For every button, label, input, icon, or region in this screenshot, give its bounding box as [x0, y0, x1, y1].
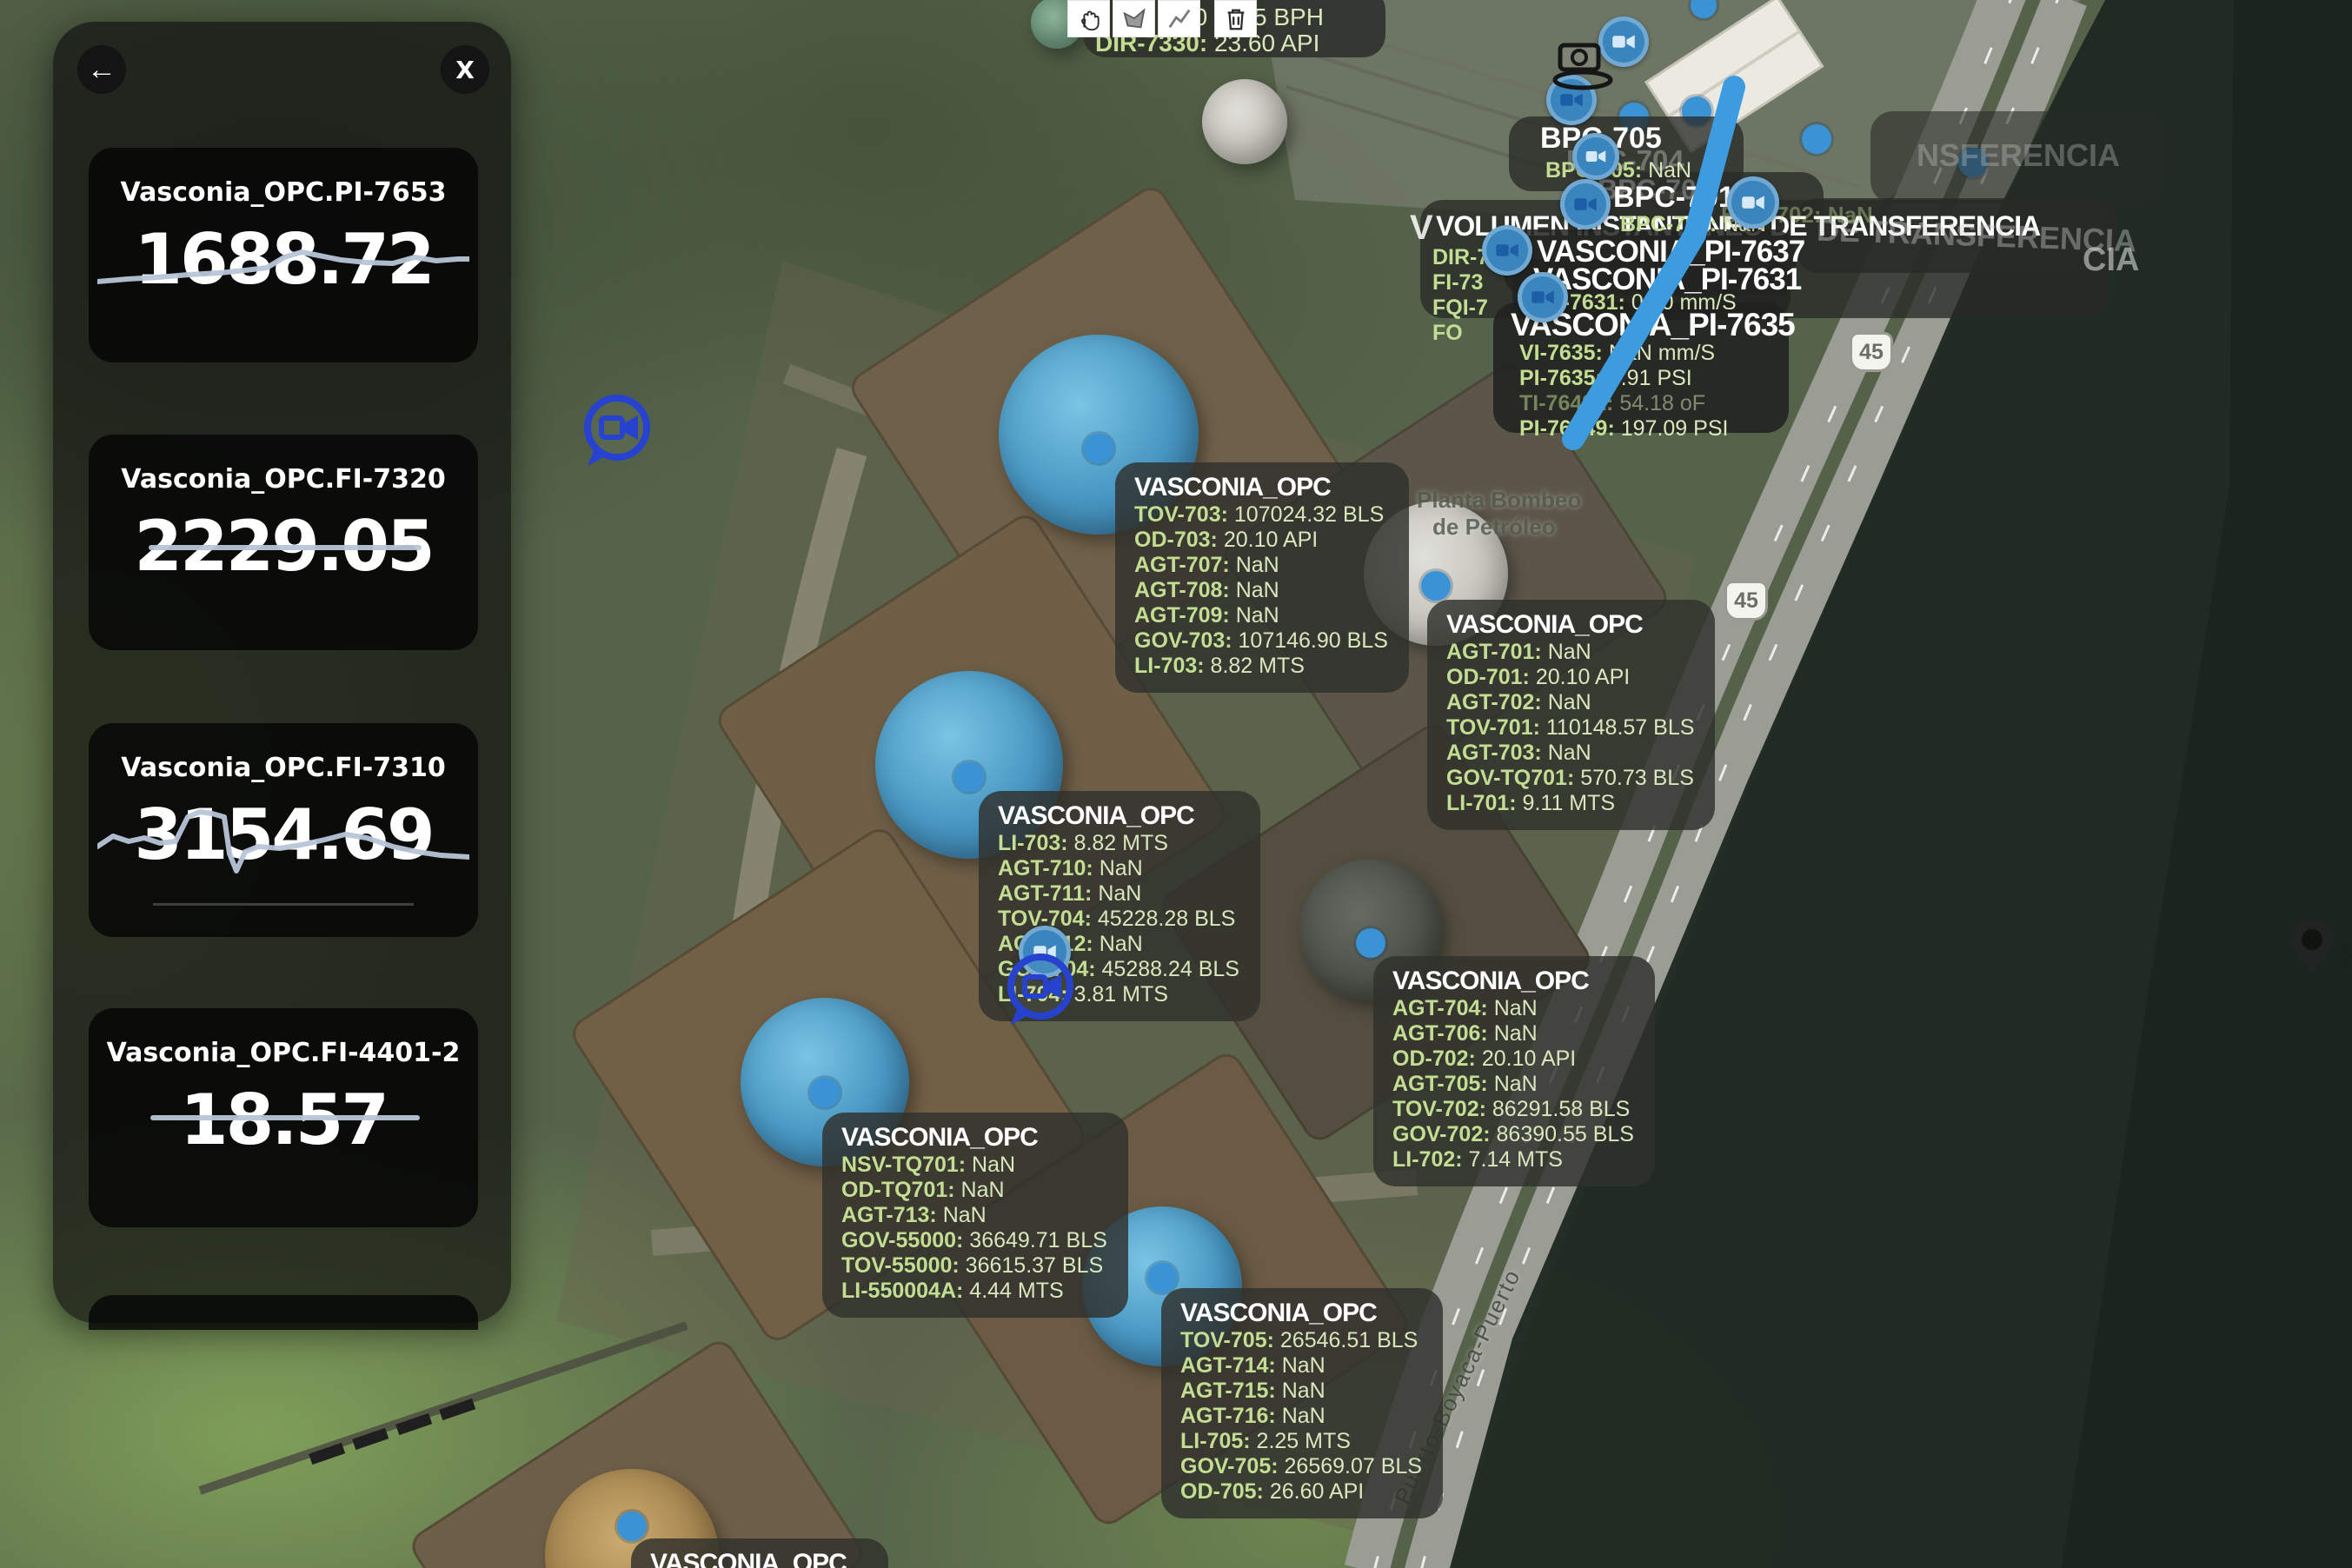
- hospital-pin-icon[interactable]: [2288, 918, 2336, 990]
- row-value: NaN: [955, 1178, 1005, 1202]
- row-label: LI-705:: [1180, 1429, 1251, 1453]
- row-value: NaN mm/S: [1603, 341, 1715, 365]
- video-camera-bubble-icon[interactable]: [581, 393, 654, 477]
- gauge-sidebar-panel: ← X Vasconia_OPC.PI-7653 1688.72 Vasconi…: [53, 22, 511, 1323]
- tooltip-row: TOV-705: 26546.51 BLS: [1180, 1328, 1422, 1353]
- row-value: NaN: [1276, 1379, 1325, 1403]
- row-value: 107146.90 BLS: [1232, 628, 1388, 653]
- tooltip-row: AGT-710: NaN: [998, 856, 1239, 881]
- tooltip-title: VASCONIA_OPC: [1446, 610, 1694, 640]
- polygon-icon: [1121, 6, 1147, 32]
- row-value: 20.10 API: [1218, 528, 1318, 552]
- tooltip-row: PI-7635: 4.91 PSI: [1519, 366, 1728, 391]
- tooltip-row: FI-73: [1432, 270, 1489, 296]
- row-value: 570.73 BLS: [1574, 766, 1694, 790]
- tooltip-rows: TOV-705: 26546.51 BLSAGT-714: NaNAGT-715…: [1180, 1328, 1422, 1505]
- row-label: GOV-703:: [1134, 628, 1232, 653]
- row-value: 36649.71 BLS: [963, 1228, 1106, 1252]
- row-label: AGT-708:: [1134, 578, 1230, 602]
- row-label: TOV-703:: [1134, 502, 1228, 527]
- polygon-tool-button[interactable]: [1113, 0, 1155, 37]
- gauge-title: Vasconia_OPC.PI-7653: [121, 177, 447, 208]
- row-value: NaN: [1230, 553, 1279, 577]
- gauge-title: Vasconia_OPC.FI-7310: [121, 753, 445, 783]
- route-shield: 45: [1724, 581, 1768, 621]
- tooltip-row: AGT-711: NaN: [998, 881, 1239, 907]
- hand-icon: [1076, 6, 1102, 32]
- row-value: NaN: [1488, 1072, 1538, 1096]
- row-label: LI-703:: [998, 831, 1068, 855]
- gauge-title: Vasconia_OPC.FI-4401-2: [107, 1038, 461, 1068]
- map-toolbar: [1067, 0, 1257, 37]
- row-value: 3.81 MTS: [1068, 982, 1168, 1007]
- bpc701-title: BPC-701: [1613, 181, 1735, 215]
- gauge-card-fi-4401-2[interactable]: Vasconia_OPC.FI-4401-2 18.57: [89, 1008, 478, 1227]
- row-value: 86390.55 BLS: [1491, 1122, 1634, 1146]
- row-value: 36615.37 BLS: [960, 1253, 1103, 1278]
- tooltip-row: TOV-703: 107024.32 BLS: [1134, 502, 1388, 528]
- tooltip-row: GOV-705: 26569.07 BLS: [1180, 1454, 1422, 1479]
- row-label: VI-7635:: [1519, 341, 1603, 365]
- map-marker-dot[interactable]: [810, 1078, 840, 1107]
- tooltip-row: OD-701: 20.10 API: [1446, 665, 1694, 690]
- row-value: NaN: [1542, 690, 1591, 714]
- gauge-card-partial[interactable]: [89, 1295, 478, 1330]
- camera-marker-icon[interactable]: [1518, 272, 1568, 322]
- row-label: TOV-702:: [1392, 1097, 1486, 1121]
- map-marker-dot[interactable]: [1802, 124, 1831, 154]
- plant-name-label: Planta Bombeo de Petróleo: [1417, 487, 1581, 541]
- storage-tank: [1202, 79, 1287, 164]
- row-value: NaN: [937, 1203, 987, 1227]
- row-value: 4.44 MTS: [963, 1279, 1063, 1303]
- gauge-title: Vasconia_OPC.FI-7320: [121, 464, 445, 495]
- row-label: AGT-716:: [1180, 1404, 1276, 1428]
- tooltip-vasconia-opc: VASCONIA_OPC: [631, 1538, 888, 1568]
- row-value: 20.10 API: [1476, 1046, 1576, 1071]
- gauge-card-pi-7653[interactable]: Vasconia_OPC.PI-7653 1688.72: [89, 148, 478, 362]
- row-value: 197.09 PSI: [1615, 416, 1729, 441]
- tooltip-row: AGT-716: NaN: [1180, 1404, 1422, 1429]
- row-label: OD-702:: [1392, 1046, 1476, 1071]
- row-label: GOV-55000:: [841, 1228, 963, 1252]
- tooltip-row: AGT-701: NaN: [1446, 640, 1694, 665]
- row-label: AGT-702:: [1446, 690, 1542, 714]
- row-label: GOV-702:: [1392, 1122, 1491, 1146]
- row-value: NaN: [1542, 741, 1591, 765]
- tooltip-row: LI-705: 2.25 MTS: [1180, 1429, 1422, 1454]
- row-label: TOV-701:: [1446, 715, 1540, 740]
- row-value: NaN: [1093, 932, 1143, 956]
- row-value: 2.25 MTS: [1251, 1429, 1351, 1453]
- row-label: OD-703:: [1134, 528, 1218, 552]
- tooltip-rows: NSV-TQ701: NaNOD-TQ701: NaNAGT-713: NaNG…: [841, 1153, 1107, 1304]
- tooltip-rows: TOV-703: 107024.32 BLSOD-703: 20.10 APIA…: [1134, 502, 1388, 679]
- tooltip-rows: AGT-701: NaNOD-701: 20.10 APIAGT-702: Na…: [1446, 640, 1694, 816]
- row-value: 110148.57 BLS: [1540, 715, 1694, 740]
- close-button[interactable]: X: [441, 45, 489, 94]
- row-value: 9.11 MTS: [1517, 791, 1615, 815]
- row-label: FO: [1432, 321, 1463, 345]
- row-value: NaN: [1488, 1021, 1538, 1046]
- camera-marker-icon[interactable]: [1727, 176, 1779, 229]
- volumen-rows: DIR-7FI-73FQI-7FO: [1432, 245, 1489, 346]
- row-value: NaN: [1276, 1353, 1325, 1378]
- plant-name-line1: Planta Bombeo: [1417, 487, 1581, 514]
- hand-tool-button[interactable]: [1067, 0, 1110, 37]
- tooltip-title: VASCONIA_OPC: [1134, 473, 1388, 502]
- tooltip-title: VASCONIA_OPC: [1180, 1299, 1422, 1328]
- row-value: 8.82 MTS: [1068, 831, 1168, 855]
- polyline-tool-button[interactable]: [1158, 0, 1200, 37]
- row-value: NaN: [1092, 881, 1141, 906]
- ghost-title-fragment: CIA: [2083, 242, 2139, 279]
- rail-cars: [309, 1399, 475, 1465]
- row-value: 45228.28 BLS: [1092, 907, 1235, 931]
- gauge-value: 3154.69: [134, 797, 432, 874]
- tooltip-row: AGT-706: NaN: [1392, 1021, 1634, 1046]
- row-value: 26569.07 BLS: [1279, 1454, 1422, 1478]
- route-shield: 45: [1850, 332, 1893, 372]
- row-value: 107024.32 BLS: [1228, 502, 1384, 527]
- row-label: FQI-7: [1432, 296, 1488, 320]
- ghost-title-fragment: V: [1410, 209, 1433, 248]
- tooltip-row: OD-705: 26.60 API: [1180, 1479, 1422, 1505]
- row-label: LI-550004A:: [841, 1279, 963, 1303]
- row-value: NaN: [1488, 996, 1538, 1020]
- tooltip-row: AGT-707: NaN: [1134, 553, 1388, 578]
- row-value: NaN: [1093, 856, 1143, 880]
- tooltip-vasconia-opc: VASCONIA_OPC AGT-704: NaNAGT-706: NaNOD-…: [1373, 956, 1655, 1186]
- camera-marker-icon[interactable]: [1572, 133, 1619, 180]
- tooltip-row: GOV-702: 86390.55 BLS: [1392, 1122, 1634, 1147]
- tooltip-row: OD-702: 20.10 API: [1392, 1046, 1634, 1072]
- row-label: BPC-701:: [1620, 212, 1717, 236]
- row-value: 8.82 MTS: [1205, 654, 1305, 678]
- map-marker-dot[interactable]: [954, 762, 984, 792]
- row-value: NaN: [1230, 603, 1279, 628]
- camera-marker-icon[interactable]: [1482, 225, 1532, 276]
- row-label: OD-TQ701:: [841, 1178, 955, 1202]
- row-label: TOV-705:: [1180, 1328, 1274, 1352]
- tooltip-row: TI-76491: 54.18 oF: [1519, 391, 1728, 416]
- row-value: 4.91 PSI: [1603, 366, 1692, 390]
- tooltip-title: VASCONIA_OPC: [1392, 967, 1634, 996]
- row-label: GOV-705:: [1180, 1454, 1279, 1478]
- polyline-icon: [1166, 6, 1193, 32]
- row-value: 54.18 oF: [1613, 391, 1705, 415]
- row-label: FI-73: [1432, 270, 1483, 295]
- map-marker-dot[interactable]: [1084, 434, 1113, 463]
- tooltip-row: PI-76649: 197.09 PSI: [1519, 416, 1728, 442]
- tooltip-rows: AGT-704: NaNAGT-706: NaNOD-702: 20.10 AP…: [1392, 996, 1634, 1173]
- gauge-value: 2229.05: [134, 508, 432, 585]
- tooltip-row: LI-703: 8.82 MTS: [1134, 654, 1388, 679]
- tooltip-row: GOV-TQ701: 570.73 BLS: [1446, 766, 1694, 791]
- row-label: PI-7635:: [1519, 366, 1603, 390]
- tooltip-row-fragment: 5 BPH: [1253, 3, 1324, 31]
- camera-marker-icon[interactable]: [1560, 179, 1611, 229]
- tooltip-row: VI-7635: NaN mm/S: [1519, 341, 1728, 366]
- tooltip-row: DIR-7: [1432, 245, 1489, 270]
- gauge-card-fi-7320[interactable]: Vasconia_OPC.FI-7320 2229.05: [89, 435, 478, 650]
- close-icon: X: [455, 56, 475, 84]
- row-value: 7.14 MTS: [1463, 1147, 1563, 1172]
- back-button[interactable]: ←: [77, 45, 126, 94]
- row-value: 20.10 API: [1530, 665, 1630, 689]
- row-label: AGT-714:: [1180, 1353, 1276, 1378]
- tooltip-row: TOV-55000: 36615.37 BLS: [841, 1253, 1107, 1279]
- row-label: OD-701:: [1446, 665, 1530, 689]
- row-value: NaN: [1230, 578, 1279, 602]
- row-label: AGT-704:: [1392, 996, 1488, 1020]
- tooltip-row: AGT-704: NaN: [1392, 996, 1634, 1021]
- cctv-camera-icon[interactable]: [1551, 40, 1621, 96]
- tooltip-row: FO: [1432, 321, 1489, 346]
- tooltip-title: VASCONIA_OPC: [650, 1549, 867, 1568]
- row-label: OD-705:: [1180, 1479, 1264, 1504]
- tooltip-row: AGT-703: NaN: [1446, 741, 1694, 766]
- trash-icon: [1224, 6, 1248, 32]
- tooltip-row: LI-550004A: 4.44 MTS: [841, 1279, 1107, 1304]
- row-label: TI-76491:: [1519, 391, 1613, 415]
- delete-tool-button[interactable]: [1214, 0, 1257, 37]
- map-marker-dot[interactable]: [617, 1512, 647, 1541]
- row-value: NaN: [1542, 640, 1591, 664]
- tooltip-vasconia-opc: VASCONIA_OPC NSV-TQ701: NaNOD-TQ701: NaN…: [822, 1113, 1128, 1318]
- map-marker-dot[interactable]: [1147, 1263, 1177, 1292]
- plant-name-line2: de Petróleo: [1432, 514, 1581, 541]
- tooltip-title: VASCONIA_OPC: [841, 1123, 1107, 1153]
- map-marker-dot[interactable]: [1691, 0, 1717, 18]
- row-label: AGT-706:: [1392, 1021, 1488, 1046]
- tooltip-row: OD-TQ701: NaN: [841, 1178, 1107, 1203]
- app-root: 45 45 Planta Bombeo de Petróleo Puerto-B…: [0, 0, 2352, 1568]
- row-label: AGT-713:: [841, 1203, 937, 1227]
- tooltip-row: LI-701: 9.11 MTS: [1446, 791, 1694, 816]
- tooltip-row: GOV-55000: 36649.71 BLS: [841, 1228, 1107, 1253]
- pi7635-rows: VI-7635: NaN mm/SPI-7635: 4.91 PSITI-764…: [1519, 341, 1728, 442]
- tooltip-row: FQI-7: [1432, 296, 1489, 321]
- row-value: NaN: [1276, 1404, 1325, 1428]
- row-value: 45288.24 BLS: [1096, 957, 1239, 981]
- row-value: 26.60 API: [1264, 1479, 1364, 1504]
- row-label: GOV-TQ701:: [1446, 766, 1574, 790]
- row-label: AGT-710:: [998, 856, 1093, 880]
- tooltip-row: AGT-702: NaN: [1446, 690, 1694, 715]
- tooltip-row: AGT-715: NaN: [1180, 1379, 1422, 1404]
- ghost-title-fragment: NSFERENCIA: [1917, 137, 2120, 174]
- row-label: LI-703:: [1134, 654, 1205, 678]
- tooltip-row: AGT-714: NaN: [1180, 1353, 1422, 1379]
- row-label: NSV-TQ701:: [841, 1153, 966, 1177]
- hospital-label: H: [2340, 935, 2352, 979]
- video-camera-bubble-icon[interactable]: [1004, 952, 1077, 1036]
- tooltip-row: TOV-701: 110148.57 BLS: [1446, 715, 1694, 741]
- tooltip-vasconia-opc: VASCONIA_OPC TOV-703: 107024.32 BLSOD-70…: [1115, 462, 1409, 693]
- tooltip-row: TOV-702: 86291.58 BLS: [1392, 1097, 1634, 1122]
- tooltip-row: AGT-709: NaN: [1134, 603, 1388, 628]
- row-label: AGT-705:: [1392, 1072, 1488, 1096]
- row-label: AGT-701:: [1446, 640, 1542, 664]
- row-label: AGT-711:: [998, 881, 1092, 906]
- row-label: LI-702:: [1392, 1147, 1463, 1172]
- row-value: NaN: [966, 1153, 1015, 1177]
- tooltip-row: AGT-713: NaN: [841, 1203, 1107, 1228]
- tooltip-row: LI-703: 8.82 MTS: [998, 831, 1239, 856]
- tooltip-row: GOV-703: 107146.90 BLS: [1134, 628, 1388, 654]
- row-label: AGT-707:: [1134, 553, 1230, 577]
- row-value: 26546.51 BLS: [1274, 1328, 1418, 1352]
- tooltip-title: VASCONIA_OPC: [998, 801, 1239, 831]
- tooltip-vasconia-opc: VASCONIA_OPC TOV-705: 26546.51 BLSAGT-71…: [1161, 1288, 1443, 1518]
- row-label: DIR-7: [1432, 245, 1489, 269]
- tooltip-row: AGT-705: NaN: [1392, 1072, 1634, 1097]
- row-label: AGT-715:: [1180, 1379, 1276, 1403]
- tooltip-vasconia-opc: VASCONIA_OPC AGT-701: NaNOD-701: 20.10 A…: [1427, 600, 1715, 830]
- gauge-value: 1688.72: [134, 222, 432, 298]
- tooltip-row: LI-702: 7.14 MTS: [1392, 1147, 1634, 1173]
- gauge-value: 18.57: [180, 1082, 387, 1159]
- row-label: TOV-55000:: [841, 1253, 960, 1278]
- gauge-baseline: [153, 903, 414, 906]
- row-label: AGT-703:: [1446, 741, 1542, 765]
- tooltip-row: AGT-708: NaN: [1134, 578, 1388, 603]
- map-marker-dot[interactable]: [1421, 571, 1451, 601]
- tooltip-row: NSV-TQ701: NaN: [841, 1153, 1107, 1178]
- row-label: PI-76649:: [1519, 416, 1615, 441]
- tooltip-row: OD-703: 20.10 API: [1134, 528, 1388, 553]
- back-arrow-icon: ←: [87, 53, 116, 87]
- map-marker-dot[interactable]: [1356, 928, 1385, 958]
- row-label: LI-701:: [1446, 791, 1517, 815]
- row-value: 86291.58 BLS: [1486, 1097, 1630, 1121]
- row-label: AGT-709:: [1134, 603, 1230, 628]
- gauge-card-fi-7310[interactable]: Vasconia_OPC.FI-7310 3154.69: [89, 723, 478, 937]
